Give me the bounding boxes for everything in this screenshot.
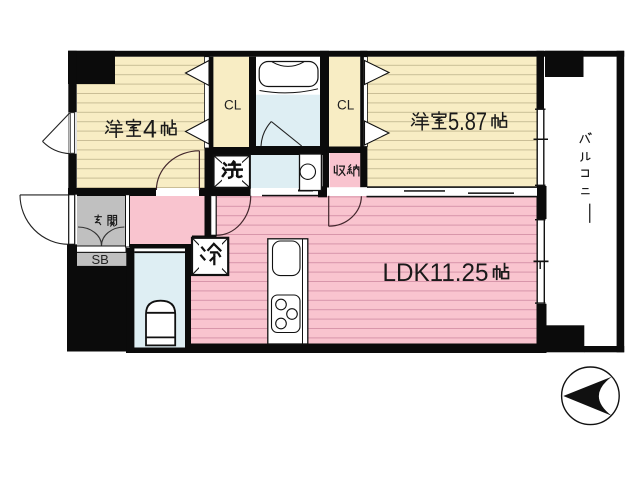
svg-text:CL: CL: [337, 98, 355, 113]
svg-text:CL: CL: [224, 98, 242, 113]
svg-text:SB: SB: [92, 252, 109, 267]
svg-text:5.87: 5.87: [448, 108, 487, 136]
svg-text:LDK11.25: LDK11.25: [383, 259, 489, 287]
svg-text:4: 4: [143, 116, 157, 144]
